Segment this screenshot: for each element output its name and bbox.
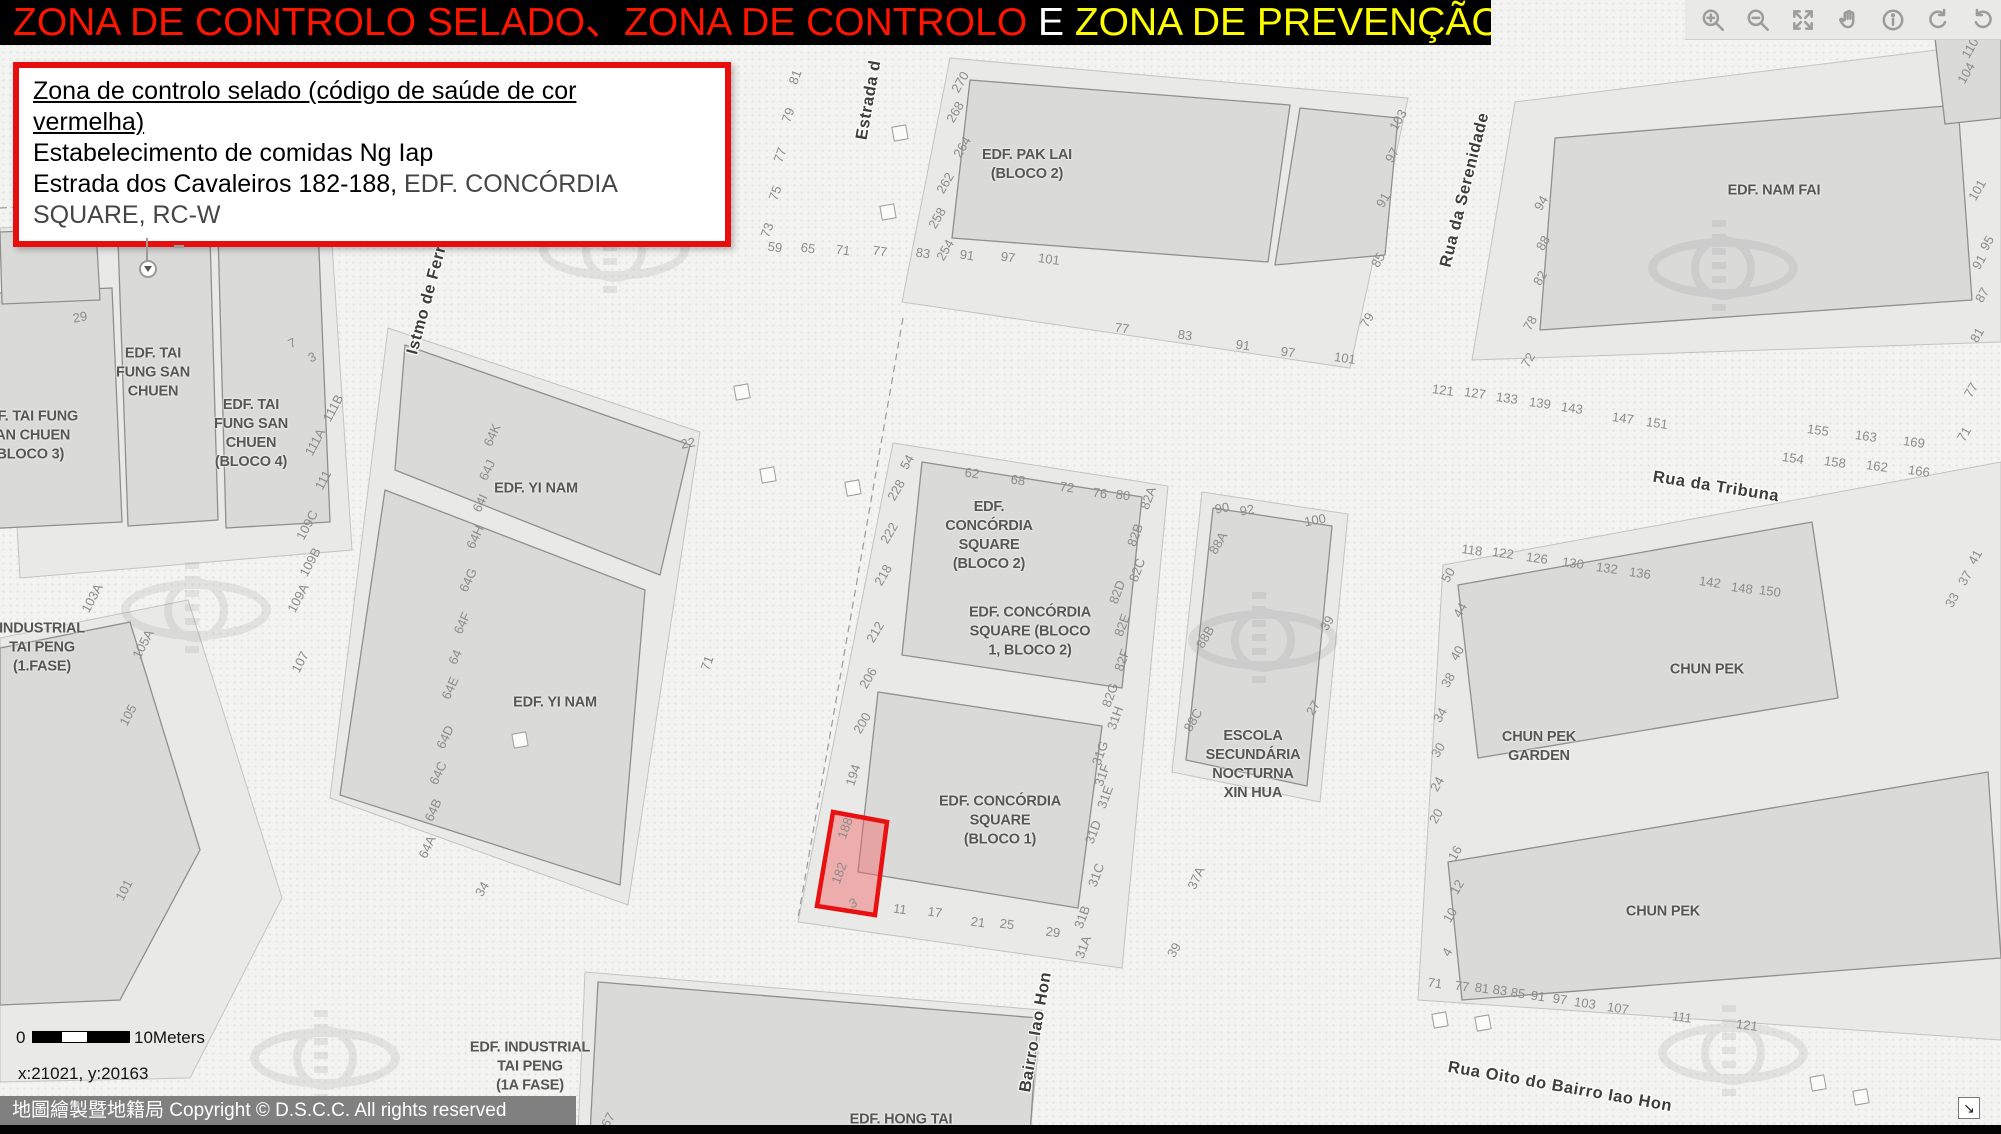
house-number: 150 xyxy=(1758,582,1782,600)
building-label: EDF. YI NAM xyxy=(494,480,578,499)
house-number: 83 xyxy=(915,245,931,262)
callout-heading-line2: vermelha) xyxy=(33,108,144,136)
title-segment: ZONA DE CONTROLO SELADO、ZONA DE CONTROLO xyxy=(13,1,1038,44)
house-number: 121 xyxy=(1431,381,1455,399)
pan-button[interactable] xyxy=(1832,4,1863,35)
scale-zero-label: 0 xyxy=(16,1028,25,1048)
zoom-in-button[interactable] xyxy=(1697,4,1728,35)
house-number: 118 xyxy=(1461,541,1484,559)
house-number: 92 xyxy=(1239,501,1256,518)
house-number: 62 xyxy=(964,465,980,482)
house-number: 155 xyxy=(1806,421,1830,439)
house-number: 21 xyxy=(970,914,986,931)
callout-heading-line1: Zona de controlo selado (código de saúde… xyxy=(33,77,576,105)
building-label: CHUN PEK xyxy=(1626,903,1700,922)
house-number: 91 xyxy=(1530,988,1546,1005)
zoom-out-button[interactable] xyxy=(1742,4,1773,35)
location-marker-icon xyxy=(139,260,157,278)
scale-distance-label: 10Meters xyxy=(134,1028,205,1048)
next-view-button[interactable] xyxy=(1967,4,1998,35)
house-number: 122 xyxy=(1491,544,1515,562)
building-label: EDF. NAM FAI xyxy=(1728,182,1821,201)
crosswalk-square xyxy=(1809,1074,1826,1091)
building-label: EDF. TAI FUNGSAN CHUEN(BLOCO 3) xyxy=(0,408,78,465)
house-number: 142 xyxy=(1698,573,1722,591)
house-number: 147 xyxy=(1611,409,1635,427)
house-number: 83 xyxy=(1492,982,1508,999)
house-number: 11 xyxy=(892,901,907,918)
house-number: 77 xyxy=(1454,978,1470,995)
house-number: 103 xyxy=(1573,994,1597,1012)
house-number: 71 xyxy=(835,242,851,259)
house-number: 139 xyxy=(1528,394,1552,412)
house-number: 29 xyxy=(72,308,89,325)
house-number: 169 xyxy=(1902,433,1926,451)
house-number: 17 xyxy=(927,904,943,921)
house-number: 126 xyxy=(1525,549,1549,567)
scale-bar xyxy=(32,1031,130,1043)
identify-button[interactable] xyxy=(1877,4,1908,35)
house-number: 91 xyxy=(1235,337,1251,354)
crosswalk-square xyxy=(511,731,528,748)
building-label: EDF. INDUSTRIALTAI PENG(1A FASE) xyxy=(470,1039,590,1096)
house-number: 133 xyxy=(1495,389,1519,407)
callout-address-line2: SQUARE, RC-W xyxy=(33,200,711,231)
title-segment: ZONA DE PREVENÇÃO xyxy=(1075,1,1491,44)
building-label: EDF. CONCÓRDIASQUARE(BLOCO 1) xyxy=(939,793,1061,850)
house-number: 65 xyxy=(800,240,816,257)
page-title: ZONA DE CONTROLO SELADO、ZONA DE CONTROLO… xyxy=(0,0,1491,45)
house-number: 107 xyxy=(1606,999,1630,1017)
building-footprint xyxy=(1540,105,1972,330)
house-number: 101 xyxy=(1333,349,1357,367)
house-number: 22 xyxy=(680,434,697,451)
house-number: 162 xyxy=(1865,457,1889,475)
house-number: 101 xyxy=(1037,250,1061,268)
callout-leader-dash xyxy=(174,245,184,248)
previous-view-icon xyxy=(1925,7,1951,33)
info-callout: Zona de controlo selado (código de saúde… xyxy=(13,62,731,247)
house-number: 154 xyxy=(1781,449,1805,467)
house-number: 68 xyxy=(1010,472,1026,489)
house-number: 72 xyxy=(1059,479,1075,496)
identify-icon xyxy=(1880,7,1906,33)
title-segment: E xyxy=(1038,1,1075,44)
building-label: EDF.CONCÓRDIASQUARE(BLOCO 2) xyxy=(945,498,1033,574)
house-number: 151 xyxy=(1645,414,1669,432)
building-label: CHUN PEK xyxy=(1670,661,1744,680)
crosswalk-square xyxy=(879,203,896,220)
house-number: 80 xyxy=(1115,487,1131,504)
full-extent-button[interactable] xyxy=(1787,4,1818,35)
next-view-icon xyxy=(1970,7,1996,33)
pan-icon xyxy=(1835,7,1861,33)
building-label: EDF. TAIFUNG SANCHUEN xyxy=(116,345,190,402)
callout-leader-line xyxy=(146,238,148,260)
crosswalk-square xyxy=(1474,1014,1491,1031)
map-application: 2973111B111A111109C109B109A107103A105A10… xyxy=(0,0,2001,1134)
house-number: 25 xyxy=(999,916,1015,933)
crosswalk-square xyxy=(1852,1088,1869,1105)
house-number: 81 xyxy=(1474,980,1490,997)
crosswalk-square xyxy=(891,124,908,141)
map-toolbar xyxy=(1685,0,2001,40)
bottom-black-bar xyxy=(0,1125,2001,1134)
building-label: CHUN PEKGARDEN xyxy=(1502,728,1576,766)
house-number: 91 xyxy=(959,247,975,264)
house-number: 121 xyxy=(1735,1016,1759,1034)
house-number: 83 xyxy=(1177,327,1193,344)
building-label: EDF. PAK LAI(BLOCO 2) xyxy=(982,146,1072,184)
house-number: 127 xyxy=(1463,384,1487,402)
house-number: 77 xyxy=(872,243,888,260)
house-number: 111 xyxy=(1671,1008,1693,1026)
building-label: ESCOLASECUNDÁRIANOCTURNAXIN HUA xyxy=(1206,727,1301,803)
overview-map-toggle[interactable]: ↘ xyxy=(1958,1097,1980,1119)
house-number: 143 xyxy=(1560,399,1584,417)
crosswalk-square xyxy=(844,479,861,496)
house-number: 163 xyxy=(1854,427,1878,445)
house-number: 136 xyxy=(1628,564,1652,582)
building-label: EDF. YI NAM xyxy=(513,694,597,713)
house-number: 148 xyxy=(1730,579,1754,597)
crosswalk-square xyxy=(759,466,776,483)
house-number: 97 xyxy=(1280,344,1296,361)
building-label: EDF. TAIFUNG SANCHUEN(BLOCO 4) xyxy=(214,396,288,472)
zoom-out-icon xyxy=(1745,7,1771,33)
crosswalk-square xyxy=(1431,1011,1448,1028)
house-number: 29 xyxy=(1045,924,1061,941)
callout-address-line1: Estrada dos Cavaleiros 182-188, EDF. CON… xyxy=(33,169,711,200)
house-number: 76 xyxy=(1092,485,1108,502)
full-extent-icon xyxy=(1790,7,1816,33)
house-number: 97 xyxy=(1000,249,1016,266)
house-number: 166 xyxy=(1907,462,1931,480)
house-number: 97 xyxy=(1552,991,1568,1008)
house-number: 59 xyxy=(767,239,783,256)
house-number: 90 xyxy=(1214,499,1231,516)
house-number: 158 xyxy=(1823,453,1847,471)
building-label: EDF. CONCÓRDIASQUARE (BLOCO1, BLOCO 2) xyxy=(969,604,1091,661)
house-number: 77 xyxy=(1114,320,1130,337)
house-number: 132 xyxy=(1595,559,1619,577)
house-number: 71 xyxy=(1427,975,1443,992)
building-label: INDUSTRIALTAI PENG(1.FASE) xyxy=(0,620,85,677)
callout-establishment: Estabelecimento de comidas Ng Iap xyxy=(33,138,711,169)
cursor-coordinates: x:21021, y:20163 xyxy=(18,1064,148,1084)
copyright-bar: 地圖繪製暨地籍局 Copyright © D.S.C.C. All rights… xyxy=(0,1096,576,1126)
crosswalk-square xyxy=(733,383,750,400)
house-number: 85 xyxy=(1510,985,1526,1002)
previous-view-button[interactable] xyxy=(1922,4,1953,35)
house-number: 130 xyxy=(1561,554,1585,572)
zoom-in-icon xyxy=(1700,7,1726,33)
